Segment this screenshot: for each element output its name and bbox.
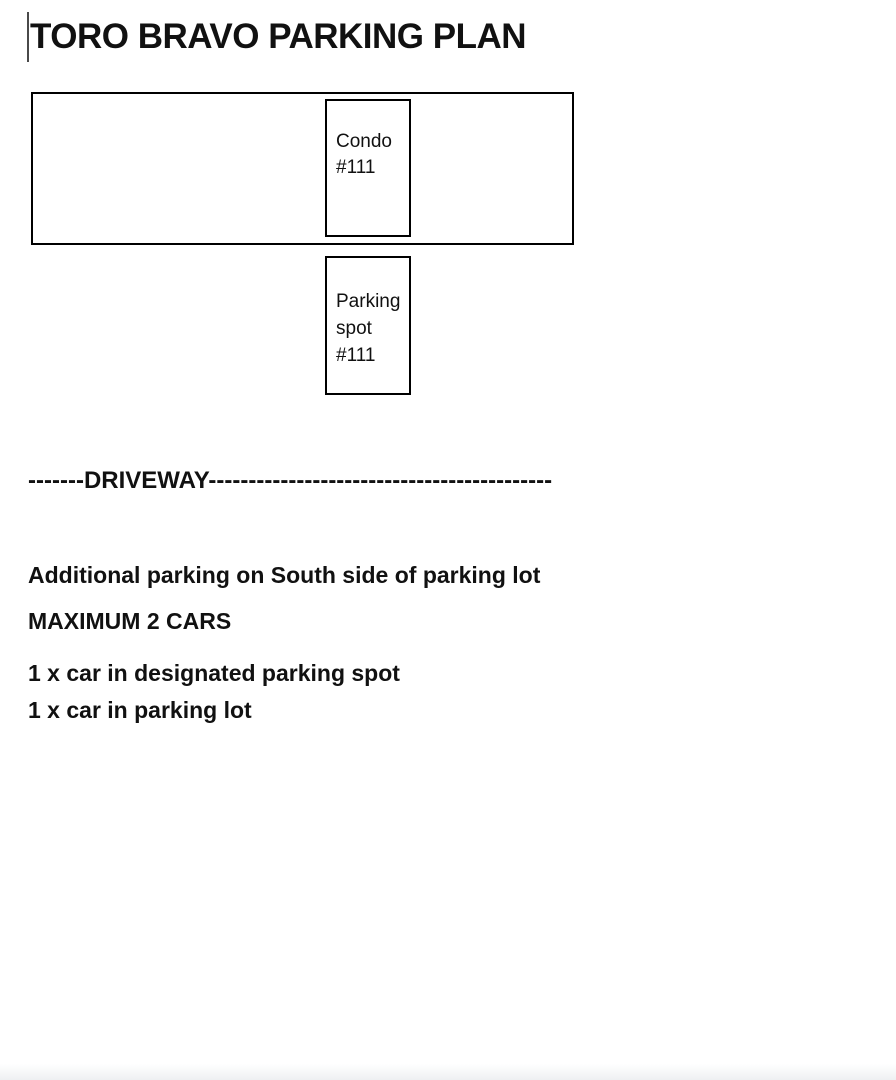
driveway-label: -------DRIVEWAY-------------------------… [28, 467, 552, 495]
condo-label-line-2: #111 [336, 155, 409, 181]
text-cursor [27, 12, 29, 62]
note-car-designated-spot: 1 x car in designated parking spot [28, 660, 400, 687]
parking-spot-label-line-2: spot [336, 315, 409, 342]
parking-spot-label-line-1: Parking [336, 288, 409, 315]
parking-spot-box: Parking spot #111 [325, 256, 411, 395]
page-bottom-shadow [0, 1064, 896, 1080]
parking-spot-label-line-3: #111 [336, 342, 409, 369]
page-title: TORO BRAVO PARKING PLAN [30, 12, 526, 62]
condo-box: Condo #111 [325, 99, 411, 237]
parking-lot-box: Condo #111 [31, 92, 574, 245]
condo-label-line-1: Condo [336, 129, 409, 155]
document-page: TORO BRAVO PARKING PLAN Condo #111 Parki… [0, 0, 896, 1080]
note-additional-parking: Additional parking on South side of park… [28, 562, 540, 589]
note-maximum-cars: MAXIMUM 2 CARS [28, 608, 231, 635]
note-car-parking-lot: 1 x car in parking lot [28, 697, 252, 724]
